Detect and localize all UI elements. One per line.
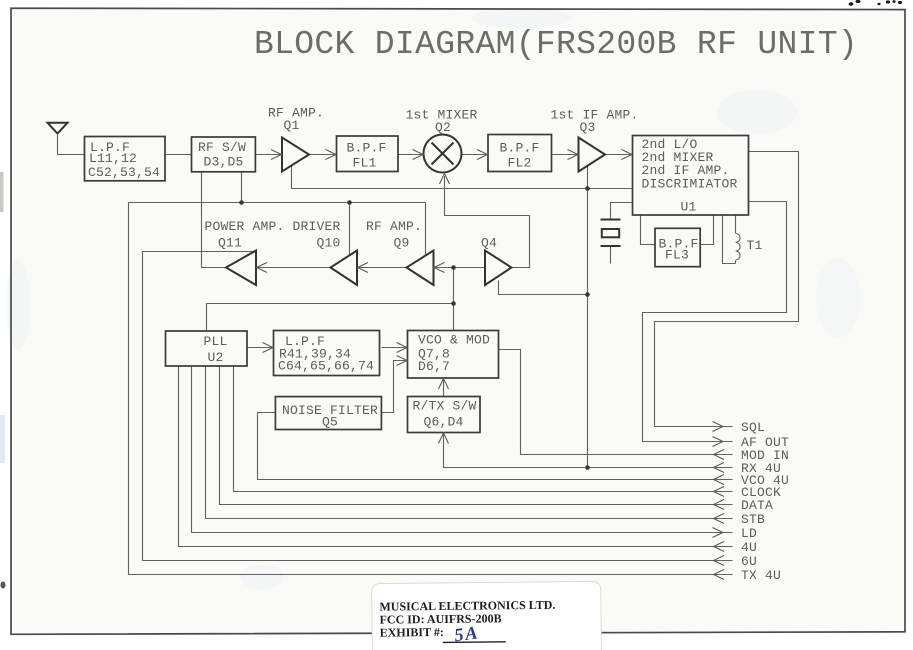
svg-text:RF S/W: RF S/W — [198, 140, 246, 155]
svg-text:R/TX S/W: R/TX S/W — [413, 399, 477, 414]
svg-text:PLL: PLL — [204, 334, 228, 349]
svg-text:C64,65,66,74: C64,65,66,74 — [278, 359, 374, 374]
svg-text:Q10: Q10 — [317, 236, 341, 251]
svg-text:D3,D5: D3,D5 — [204, 155, 244, 170]
svg-text:U2: U2 — [208, 350, 224, 365]
svg-text:Q2: Q2 — [435, 120, 451, 135]
svg-text:BLOCK DIAGRAM(FRS200B RF UNIT): BLOCK DIAGRAM(FRS200B RF UNIT) — [254, 26, 858, 63]
svg-text:TX 4U: TX 4U — [741, 568, 781, 583]
svg-text:RF AMP.: RF AMP. — [366, 219, 422, 234]
svg-text:6U: 6U — [741, 554, 757, 569]
svg-text:FL1: FL1 — [353, 156, 377, 171]
svg-text:B.P.F: B.P.F — [500, 141, 540, 156]
svg-text:Q4: Q4 — [481, 236, 497, 251]
svg-text:Q5: Q5 — [322, 415, 338, 430]
svg-text:DISCRIMIATOR: DISCRIMIATOR — [642, 177, 738, 192]
svg-text:Q6,D4: Q6,D4 — [424, 415, 464, 430]
svg-text:EXHIBIT #:: EXHIBIT #: — [380, 625, 444, 640]
svg-text:B.P.F: B.P.F — [347, 141, 387, 156]
svg-text:5A: 5A — [453, 623, 480, 646]
svg-text:SQL: SQL — [741, 420, 765, 435]
svg-text:D6,7: D6,7 — [418, 359, 450, 374]
svg-text:POWER AMP. DRIVER: POWER AMP. DRIVER — [205, 219, 341, 234]
svg-text:Q1: Q1 — [284, 118, 300, 133]
svg-text:C52,53,54: C52,53,54 — [88, 165, 160, 180]
svg-text:L11,12: L11,12 — [89, 151, 137, 166]
svg-text:Q9: Q9 — [394, 236, 410, 251]
svg-text:4U: 4U — [741, 540, 757, 555]
svg-text:T1: T1 — [747, 238, 763, 253]
svg-text:Q3: Q3 — [580, 120, 596, 135]
svg-text:FL3: FL3 — [665, 248, 689, 263]
svg-text:VCO & MOD: VCO & MOD — [418, 333, 490, 348]
svg-text:DATA: DATA — [741, 498, 773, 513]
svg-text:U1: U1 — [681, 200, 697, 215]
svg-text:STB: STB — [741, 512, 765, 527]
svg-text:LD: LD — [741, 526, 757, 541]
svg-text:FL2: FL2 — [508, 156, 532, 171]
svg-text:Q11: Q11 — [218, 236, 242, 251]
